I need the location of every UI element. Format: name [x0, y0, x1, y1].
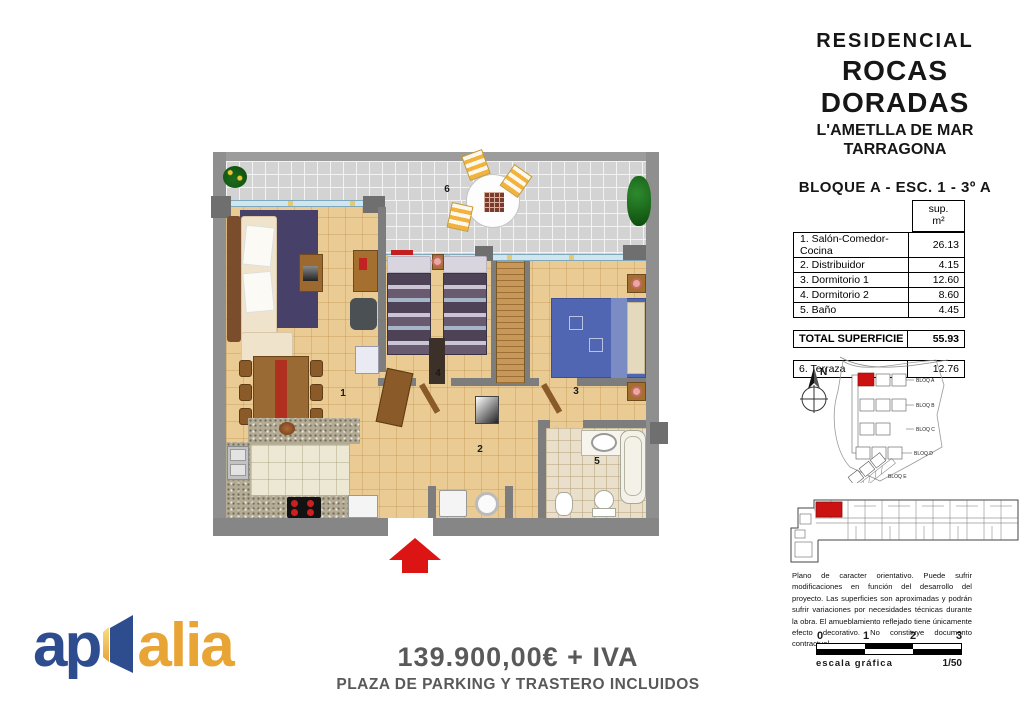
entry-arrow-head	[389, 538, 441, 560]
bidet	[555, 492, 573, 516]
bed1-fold	[611, 298, 627, 378]
table-row: 1. Salón-Comedor-Cocina 26.13	[794, 233, 965, 258]
block-label-e: BLOQ E	[888, 474, 907, 480]
kitchen-island	[250, 444, 350, 496]
terrace-floor-upper	[226, 161, 646, 200]
site-unit	[876, 399, 890, 411]
header-residencial: RESIDENCIAL	[770, 30, 1020, 53]
scale-tick: 2	[910, 630, 916, 642]
entry-opening	[388, 518, 433, 536]
dining-chair	[239, 384, 252, 401]
bed2b-pillow	[443, 256, 487, 273]
total-label: TOTAL SUPERFICIE	[794, 331, 907, 347]
site-corridor	[852, 375, 858, 453]
burner	[307, 500, 314, 507]
block-label-d: BLOQ D	[914, 451, 933, 457]
scale-ratio: 1/50	[943, 658, 962, 669]
unit-header-m2: m²	[932, 216, 944, 228]
site-unit	[888, 447, 902, 459]
small-cabinet	[355, 346, 379, 374]
header-city: L'AMETLLA DE MAR	[770, 122, 1020, 140]
dining-chair	[239, 360, 252, 377]
scale-bar-graphic	[816, 643, 962, 655]
bed1-pillows	[627, 302, 645, 374]
bathtub-inner	[624, 436, 642, 496]
lamp	[631, 278, 642, 289]
block-label-b: BLOQ B	[916, 403, 935, 409]
bath-sink	[591, 433, 617, 452]
sofa-cushion	[242, 271, 274, 313]
row-value: 4.15	[909, 258, 965, 273]
highlighted-unit	[858, 373, 874, 386]
fruit-bowl	[279, 422, 295, 435]
room-number-bathroom: 5	[590, 456, 604, 467]
row-label: 5. Baño	[794, 303, 909, 318]
row-label: 2. Distribuidor	[794, 258, 909, 273]
side-desk	[353, 250, 378, 292]
price-block: 139.900,00€ + IVA PLAZA DE PARKING Y TRA…	[262, 642, 774, 694]
apialia-logo: ap alia	[33, 612, 233, 680]
bed2b	[443, 273, 487, 355]
entry-arrow-stem	[402, 560, 428, 573]
total-value: 55.93	[907, 331, 964, 347]
wall-bath-top-b	[583, 420, 646, 428]
living-window	[226, 200, 383, 207]
pillar-terrace-right	[623, 245, 646, 260]
flyer-page: 6 1 2 3 4 5 RESIDENCIAL ROCAS DORADAS L'…	[0, 0, 1024, 723]
price-amount: 139.900,00€ + IVA	[262, 642, 774, 673]
table-row: 2. Distribuidor 4.15	[794, 258, 965, 273]
floor-plan: 6 1 2 3 4 5	[203, 146, 668, 576]
sink-basin	[230, 464, 246, 476]
bed1-pattern	[569, 316, 583, 330]
table-row: 4. Dormitorio 2 8.60	[794, 288, 965, 303]
row-value: 26.13	[909, 233, 965, 258]
burner	[307, 509, 314, 516]
terrace-table-board	[484, 192, 504, 212]
sofa-cushion	[242, 225, 275, 268]
wall-top	[213, 152, 659, 161]
highlighted-unit-building	[816, 502, 842, 517]
logo-text-ap: ap	[33, 615, 99, 677]
room-number-bedroom2: 4	[431, 368, 445, 379]
wall-bottom	[213, 518, 659, 536]
room-number-terrace: 6	[440, 184, 454, 195]
sink-basin	[230, 449, 246, 461]
area-table-unit-header: sup. m²	[912, 200, 965, 232]
scale-ticks: 0 1 2 3	[816, 630, 962, 643]
dining-chair	[310, 384, 323, 401]
scale-tick: 0	[817, 630, 823, 642]
shelf-red-item	[391, 250, 413, 255]
washer	[439, 490, 467, 517]
wall-hall-b	[451, 378, 539, 386]
pillar-bath-right	[650, 422, 668, 444]
toilet-tank	[592, 508, 616, 517]
burner	[291, 509, 298, 516]
area-rows: 1. Salón-Comedor-Cocina 26.13 2. Distrib…	[793, 232, 965, 318]
wall-bath-left	[538, 428, 546, 518]
scale-tick: 3	[956, 630, 962, 642]
wall-wardrobe-bedroom1	[525, 261, 530, 383]
north-compass: N	[800, 367, 828, 413]
wall-laundry-right	[505, 486, 513, 518]
kitchen-counter-top	[248, 418, 360, 444]
total-row: TOTAL SUPERFICIE 55.93	[793, 330, 965, 348]
row-value: 12.60	[909, 273, 965, 288]
site-unit	[892, 374, 906, 386]
dining-chair	[310, 360, 323, 377]
site-unit	[856, 447, 870, 459]
header-block: RESIDENCIAL ROCAS DORADAS L'AMETLLA DE M…	[770, 30, 1020, 196]
wall-bath-top-a	[538, 420, 550, 428]
scale-tick: 1	[863, 630, 869, 642]
row-label: 4. Dormitorio 2	[794, 288, 909, 303]
header-title: ROCAS DORADAS	[770, 55, 1020, 119]
row-label: 1. Salón-Comedor-Cocina	[794, 233, 909, 258]
wardrobe	[496, 261, 525, 383]
price-includes: PLAZA DE PARKING Y TRASTERO INCLUIDOS	[262, 676, 774, 694]
row-label: 3. Dormitorio 1	[794, 273, 909, 288]
table-row: 5. Baño 4.45	[794, 303, 965, 318]
site-unit	[860, 423, 874, 435]
hall-cabinet	[475, 396, 499, 424]
area-table: sup. m² 1. Salón-Comedor-Cocina 26.13 2.…	[793, 200, 965, 378]
building-plan	[786, 494, 1022, 574]
scale-label: escala gráfica	[816, 658, 893, 669]
row-value: 8.60	[909, 288, 965, 303]
scale-bar-bottom	[817, 649, 961, 654]
north-label: N	[820, 367, 827, 378]
terrace-flowers	[223, 166, 247, 188]
header-block-line: BLOQUE A - ESC. 1 - 3º A	[770, 179, 1020, 196]
lamp	[631, 386, 642, 397]
bed2a	[387, 273, 431, 355]
table-row: 3. Dormitorio 1 12.60	[794, 273, 965, 288]
row-value: 4.45	[909, 303, 965, 318]
burner	[291, 500, 298, 507]
wall-laundry-left	[428, 486, 436, 518]
bed2a-pillow	[387, 256, 431, 273]
pillar-left	[211, 196, 231, 218]
desk-red-item	[359, 258, 367, 270]
header-province: TARRAGONA	[770, 141, 1020, 159]
wall-living-bedroom2	[378, 207, 386, 372]
room-number-living: 1	[336, 388, 350, 399]
site-unit	[876, 374, 890, 386]
laptop	[303, 266, 318, 281]
armchair-gray	[350, 298, 377, 330]
site-plan: N BLOQ A BLOQ B BLOQ C BLOQ D	[788, 355, 968, 483]
room-number-bedroom1: 3	[569, 386, 583, 397]
toilet-bowl	[594, 490, 614, 510]
lamp	[432, 256, 443, 267]
site-road	[840, 357, 948, 367]
sofa-back	[227, 216, 241, 342]
door-icon	[102, 612, 136, 676]
site-unit	[876, 423, 890, 435]
round-appliance	[475, 492, 499, 516]
block-label-c: BLOQ C	[916, 427, 935, 433]
terrace-plant	[627, 176, 651, 226]
bed1-pattern	[589, 338, 603, 352]
site-unit	[892, 399, 906, 411]
block-label-a: BLOQ A	[916, 378, 935, 384]
scale-bar: 0 1 2 3 escala gráfica 1/50	[816, 630, 962, 669]
kitchen-appliance	[348, 495, 378, 518]
site-unit	[860, 399, 874, 411]
logo-text-alia: alia	[137, 615, 232, 677]
room-number-hall: 2	[473, 444, 487, 455]
table-runner	[275, 360, 287, 422]
